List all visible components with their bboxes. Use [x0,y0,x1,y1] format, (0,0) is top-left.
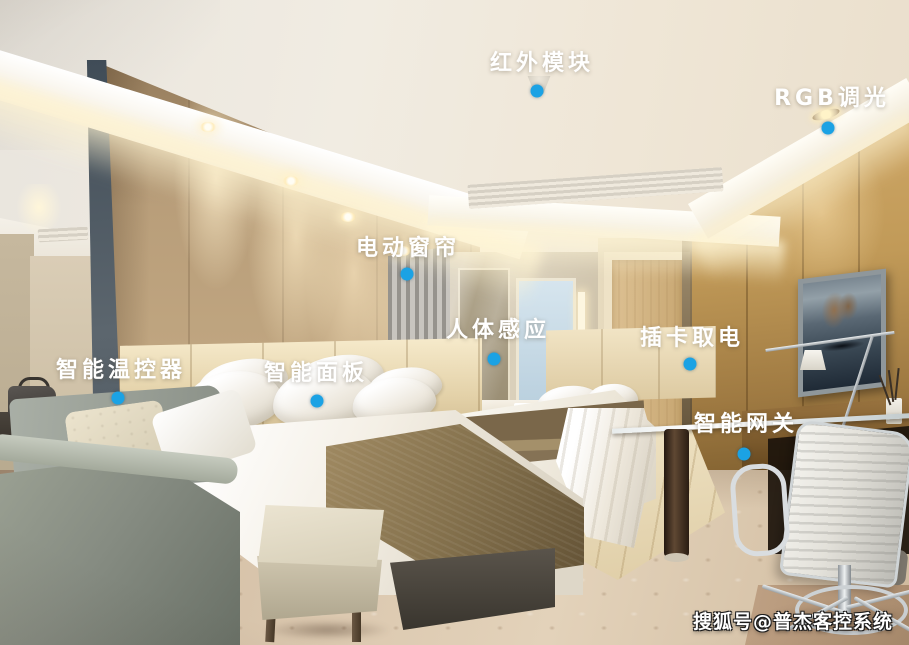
device-marker-smart-thermostat [112,392,125,405]
device-marker-infrared-module [531,85,544,98]
watermark: 搜狐号@普杰客控系统 [693,607,893,634]
device-label-rgb-dimming: RGB调光 [774,80,890,112]
device-label-smart-gateway: 智能网关 [694,406,798,438]
device-label-smart-thermostat: 智能温控器 [56,352,186,384]
annotation-layer: 红外模块 RGB调光 电动窗帘 人体感应 插卡取电 智能温控器 智能面板 智能网… [0,0,909,645]
device-label-card-power: 插卡取电 [640,320,744,352]
device-label-infrared-module: 红外模块 [490,45,594,77]
device-marker-body-sensor [488,353,501,366]
device-label-body-sensor: 人体感应 [446,312,550,344]
device-marker-motor-curtain [401,268,414,281]
device-marker-card-power [684,358,697,371]
device-marker-smart-panel [311,395,324,408]
device-label-motor-curtain: 电动窗帘 [356,230,460,262]
hotel-room-photo: 红外模块 RGB调光 电动窗帘 人体感应 插卡取电 智能温控器 智能面板 智能网… [0,0,909,645]
device-label-smart-panel: 智能面板 [264,355,368,387]
device-marker-rgb-dimming [822,122,835,135]
device-marker-smart-gateway [738,448,751,461]
